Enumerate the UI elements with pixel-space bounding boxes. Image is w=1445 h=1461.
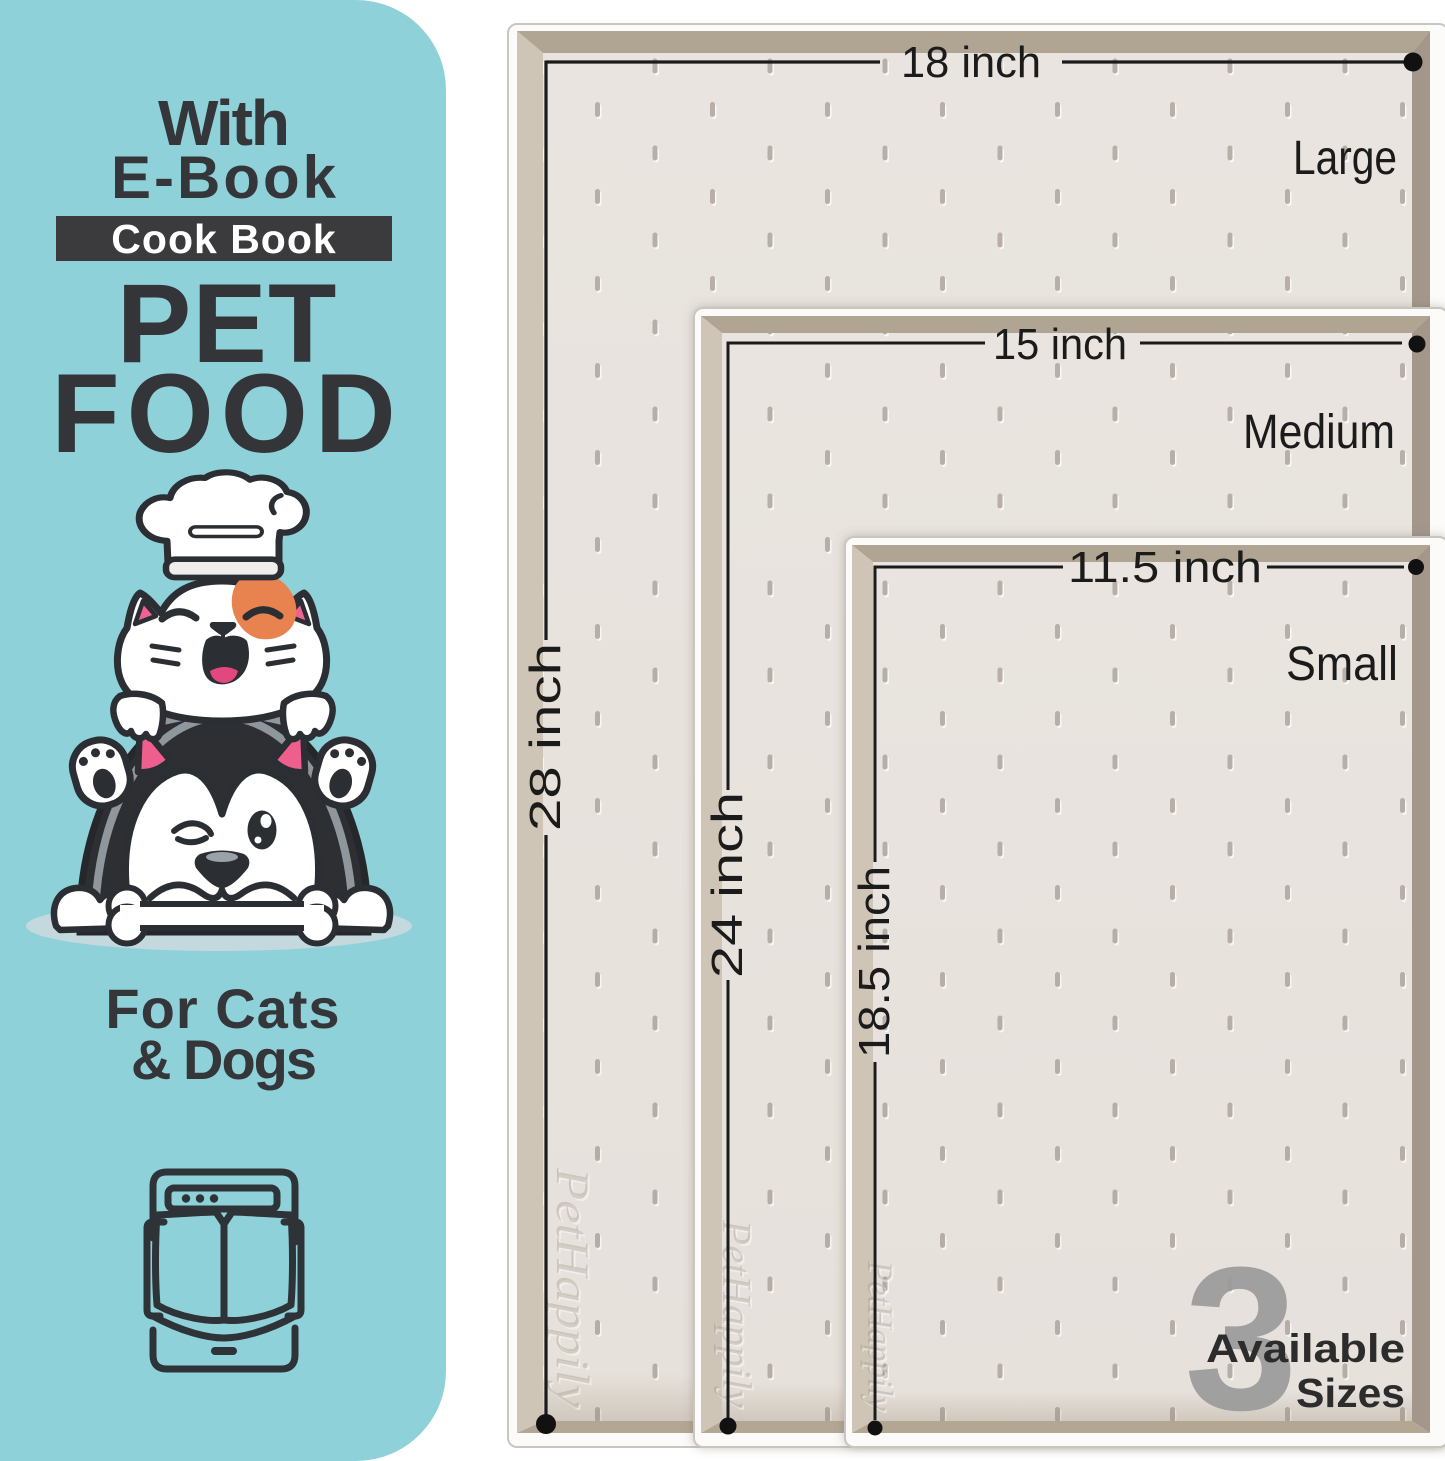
svg-text:PetHappily: PetHappily	[860, 1260, 900, 1411]
svg-text:15 inch: 15 inch	[993, 320, 1127, 369]
svg-text:Small: Small	[1286, 638, 1398, 691]
svg-text:18 inch: 18 inch	[901, 38, 1041, 87]
svg-text:PetHappily: PetHappily	[714, 1219, 760, 1409]
svg-text:Available: Available	[1206, 1327, 1405, 1371]
svg-text:11.5 inch: 11.5 inch	[1068, 543, 1262, 592]
svg-text:PetHappily: PetHappily	[546, 1167, 598, 1408]
svg-text:28 inch: 28 inch	[521, 643, 570, 831]
svg-text:18.5 inch: 18.5 inch	[850, 866, 899, 1058]
svg-text:Sizes: Sizes	[1296, 1370, 1405, 1416]
svg-text:Medium: Medium	[1243, 406, 1395, 459]
svg-text:24 inch: 24 inch	[703, 792, 752, 978]
svg-text:Large: Large	[1293, 132, 1397, 185]
